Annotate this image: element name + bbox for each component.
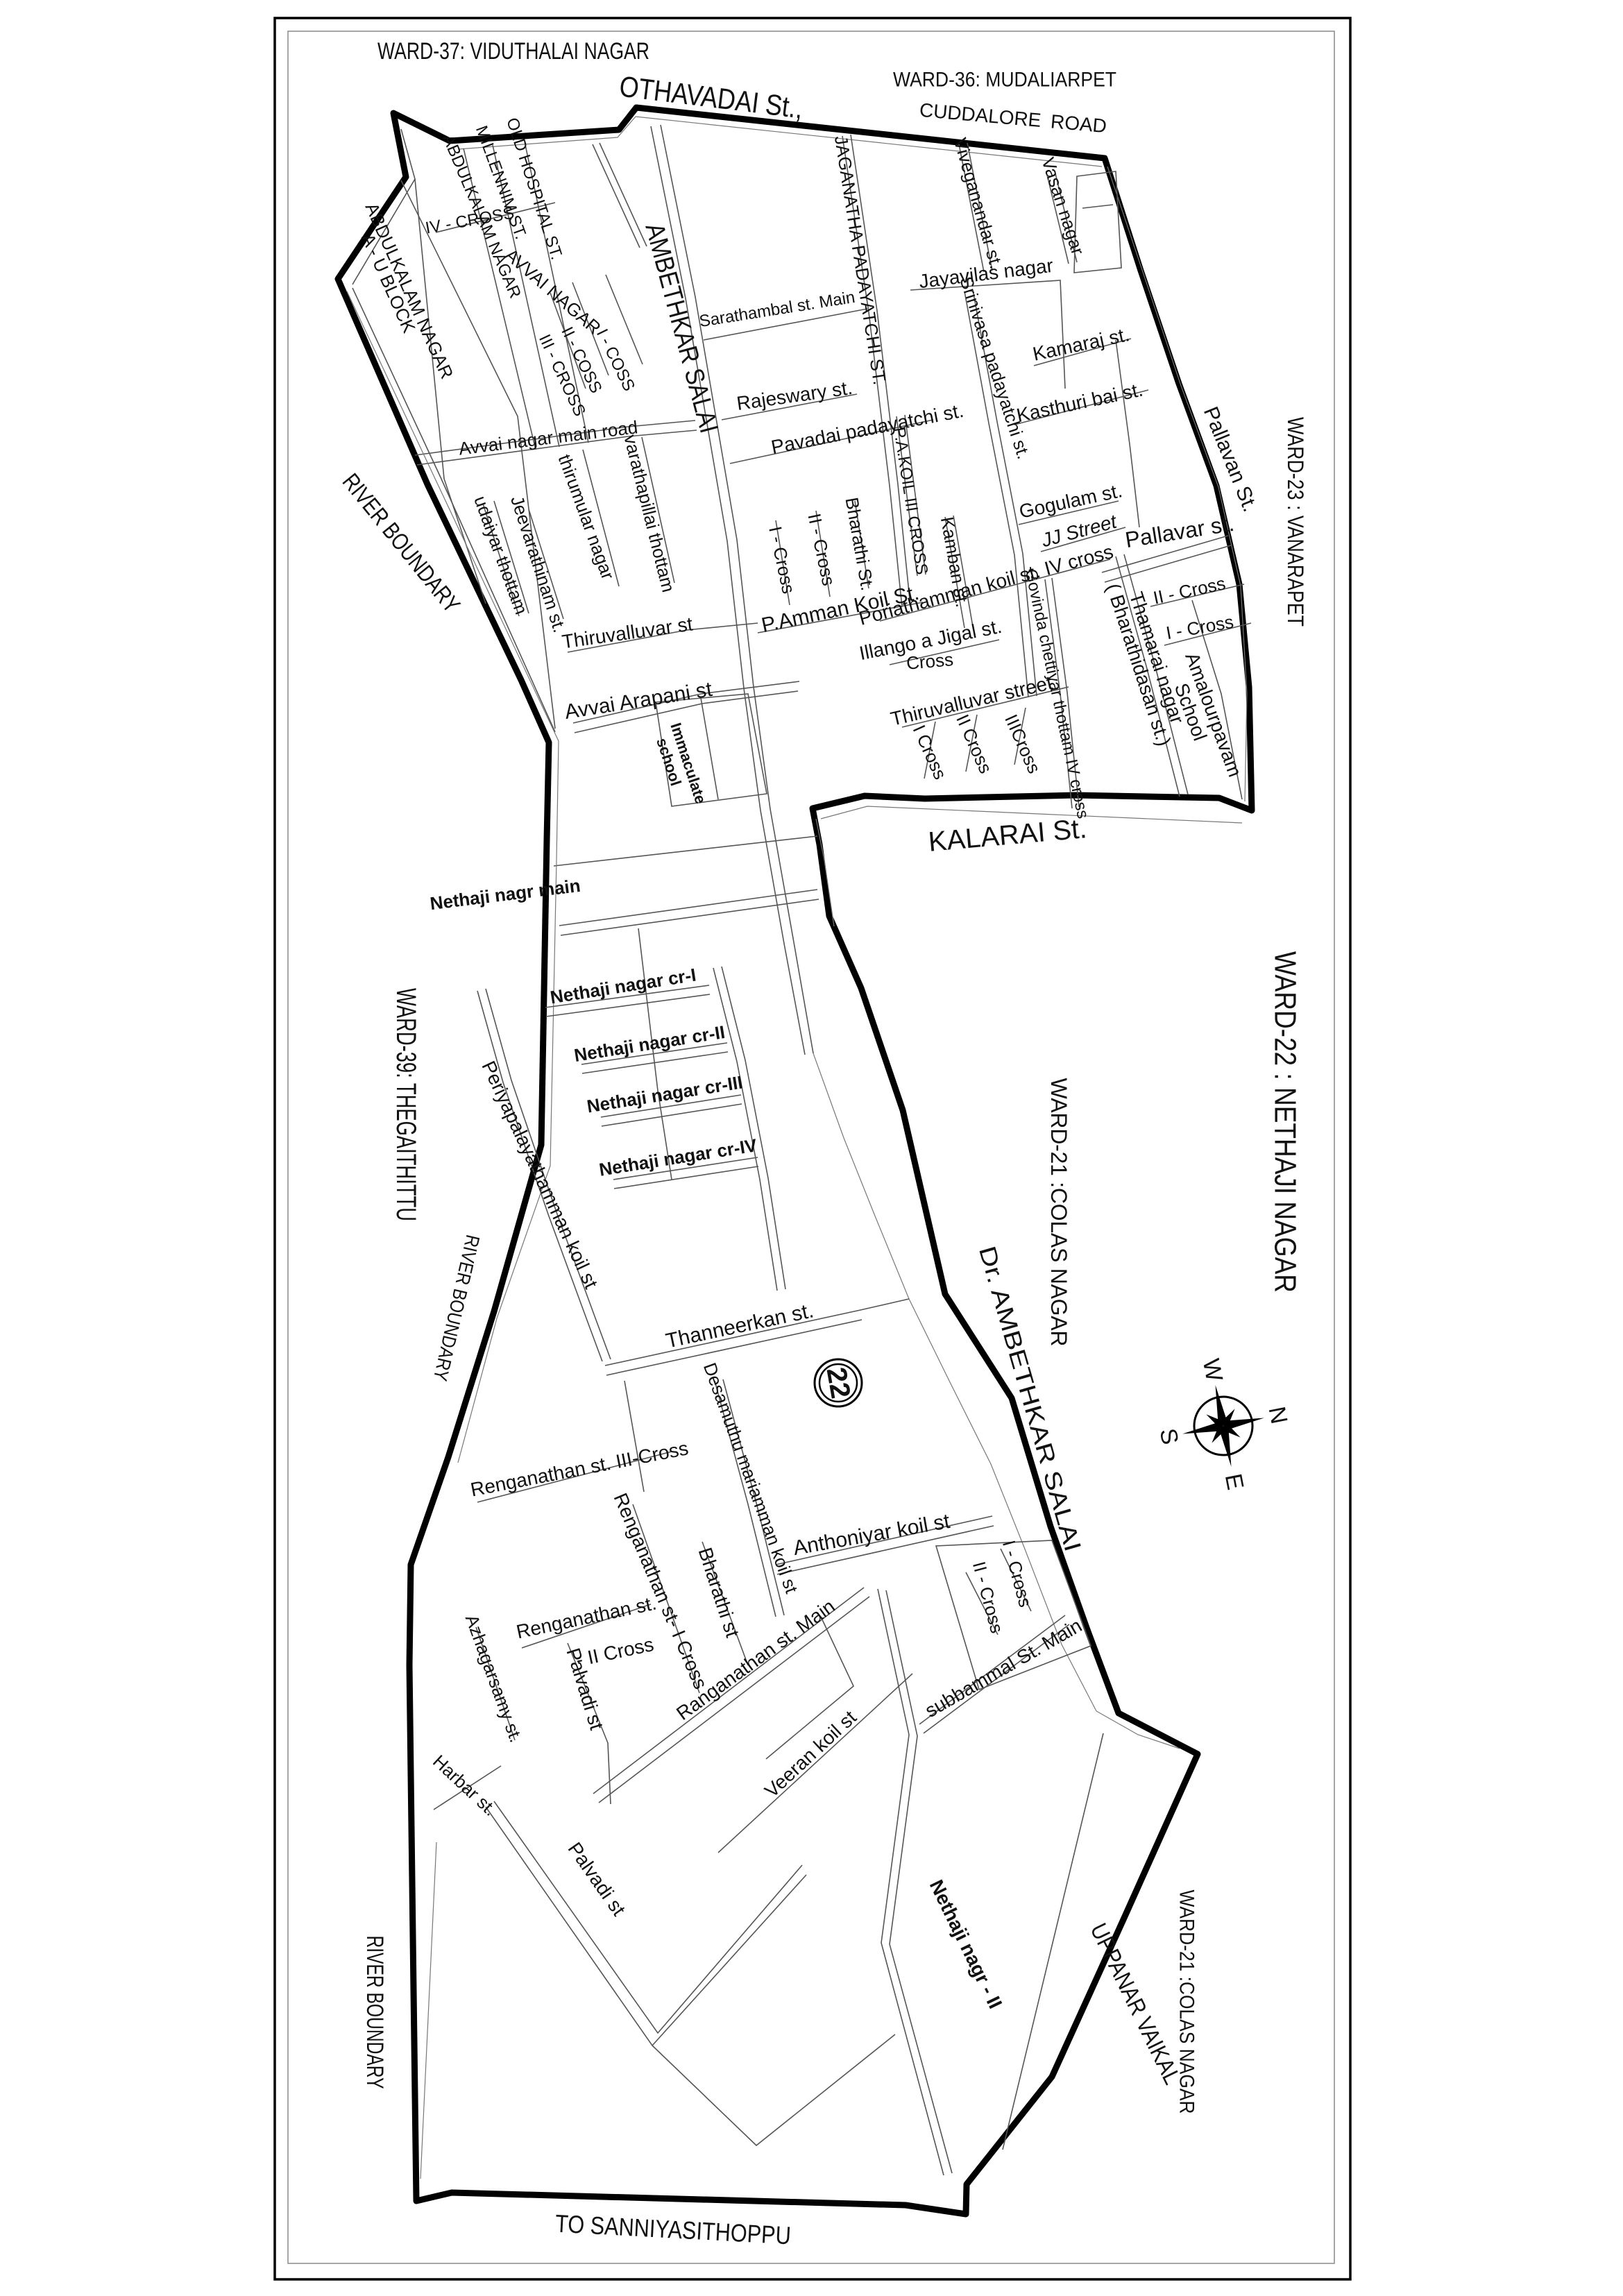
svg-text:WARD-21 :COLAS NAGAR: WARD-21 :COLAS NAGAR <box>1046 1078 1071 1347</box>
svg-text:WARD-39: THEGAITHITTU: WARD-39: THEGAITHITTU <box>391 988 421 1221</box>
svg-text:WARD-36: MUDALIARPET: WARD-36: MUDALIARPET <box>893 69 1116 92</box>
svg-text:WARD-22 : NETHAJI NAGAR: WARD-22 : NETHAJI NAGAR <box>1268 951 1302 1293</box>
svg-text:WARD-37: VIDUTHALAI NAGAR: WARD-37: VIDUTHALAI NAGAR <box>377 38 649 65</box>
svg-text:Cross: Cross <box>906 649 954 674</box>
svg-text:22: 22 <box>820 1365 856 1400</box>
svg-text:WARD-23 : VANARAPET: WARD-23 : VANARAPET <box>1283 417 1308 627</box>
svg-text:RIVER BOUNDARY: RIVER BOUNDARY <box>362 1936 388 2089</box>
